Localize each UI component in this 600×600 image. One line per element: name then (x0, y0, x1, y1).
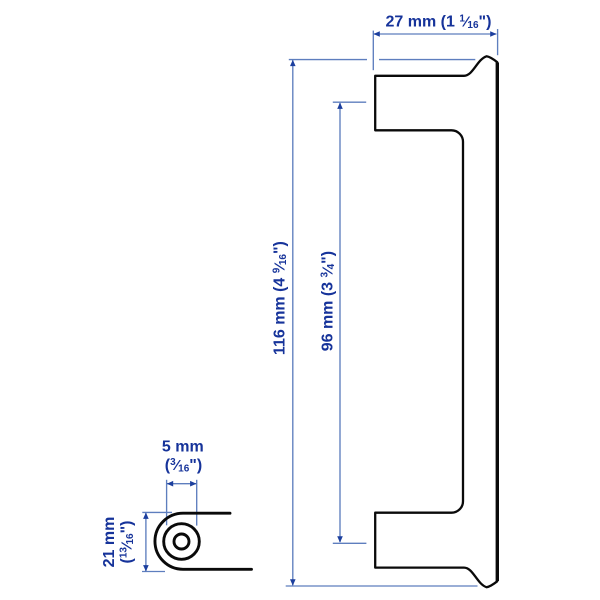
svg-text:5 mm: 5 mm (162, 439, 204, 456)
svg-text:21 mm: 21 mm (101, 517, 118, 568)
